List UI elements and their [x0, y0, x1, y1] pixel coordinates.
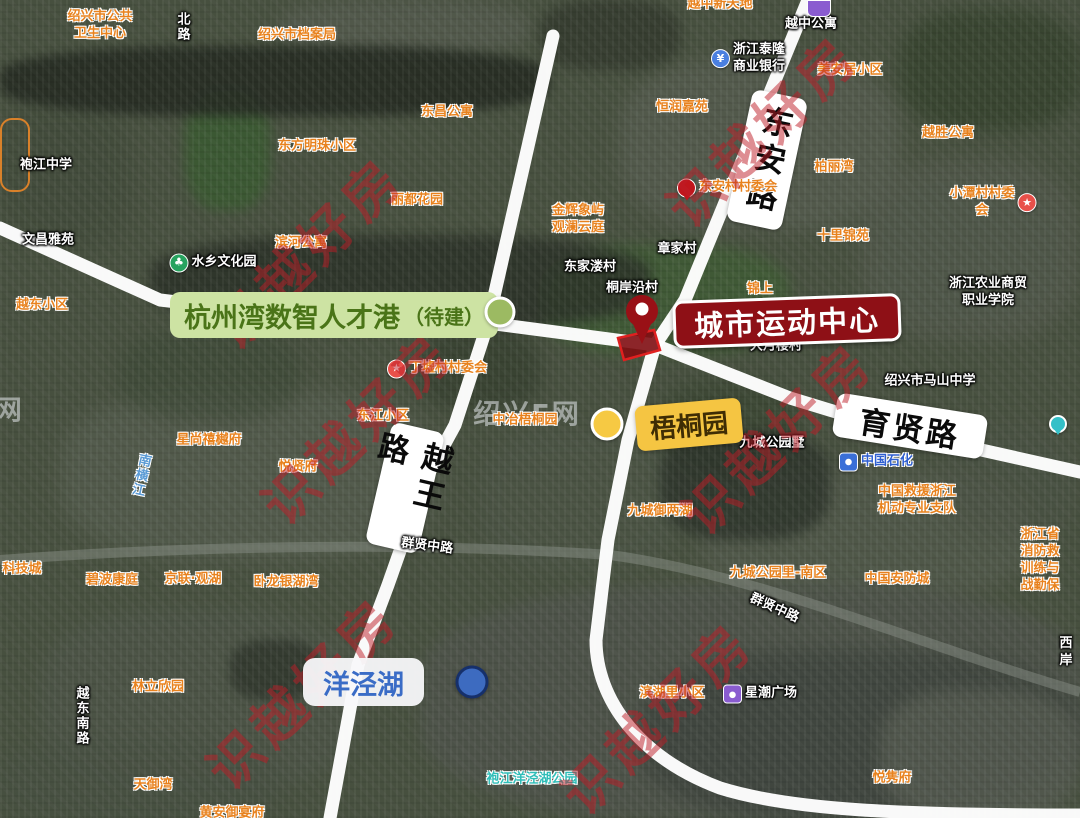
- road-yuewang: [330, 36, 553, 818]
- wutong-garden-marker: [591, 408, 624, 441]
- talent-port-marker: [485, 297, 516, 328]
- roads-overlay: [0, 0, 1080, 818]
- road-qunxian-middle: [0, 547, 1080, 692]
- metro-icon: [807, 0, 831, 17]
- site-pin-group: [600, 288, 672, 368]
- teal-pin: [1049, 415, 1067, 433]
- yangjing-lake-marker: [456, 666, 489, 699]
- satellite-map[interactable]: 东安路 越王路 育贤路 杭州湾数智人才港 （待建） 城市运动中心 梧桐园 洋泾湖…: [0, 0, 1080, 818]
- road-yuxian: [0, 228, 1080, 472]
- site-pin-hole: [636, 303, 649, 316]
